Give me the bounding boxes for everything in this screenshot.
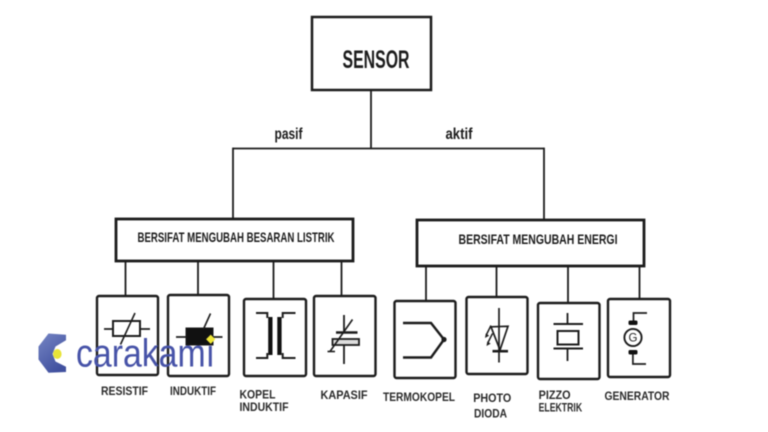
- svg-text:aktif: aktif: [446, 126, 474, 143]
- svg-text:GENERATOR: GENERATOR: [605, 389, 670, 403]
- svg-text:G: G: [629, 333, 638, 345]
- svg-text:INDUKTIF: INDUKTIF: [240, 400, 289, 414]
- svg-text:carakamı: carakamı: [76, 333, 215, 376]
- svg-text:RESISTIF: RESISTIF: [101, 384, 148, 398]
- svg-text:TERMOKOPEL: TERMOKOPEL: [383, 390, 455, 404]
- svg-text:PHOTO: PHOTO: [473, 391, 511, 405]
- svg-text:ELEKTRIK: ELEKTRIK: [539, 401, 583, 415]
- svg-text:DIODA: DIODA: [474, 407, 507, 421]
- svg-text:BERSIFAT MENGUBAH BESARAN LIST: BERSIFAT MENGUBAH BESARAN LISTRIK: [138, 229, 335, 245]
- svg-text:SENSOR: SENSOR: [343, 46, 410, 74]
- svg-text:BERSIFAT MENGUBAH ENERGI: BERSIFAT MENGUBAH ENERGI: [459, 231, 618, 247]
- svg-text:pasif: pasif: [275, 126, 304, 143]
- svg-text:INDUKTIF: INDUKTIF: [170, 384, 216, 398]
- svg-text:KAPASIF: KAPASIF: [321, 388, 368, 402]
